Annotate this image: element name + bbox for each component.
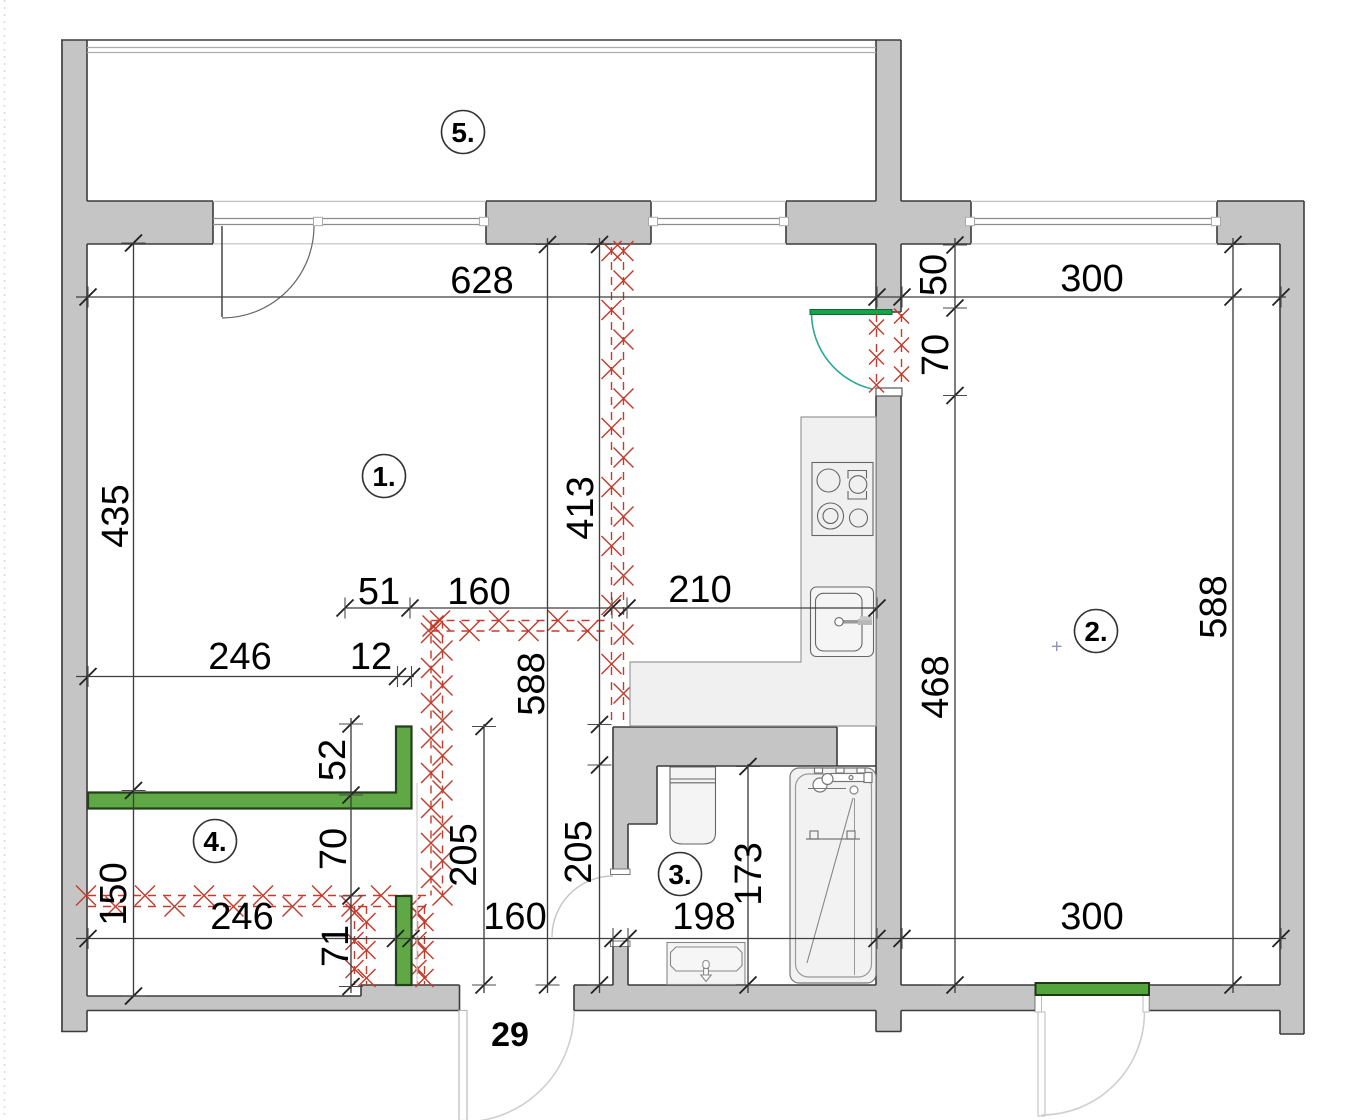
svg-text:198: 198 [672, 896, 735, 938]
svg-text:150: 150 [93, 862, 135, 925]
svg-text:205: 205 [558, 820, 600, 883]
svg-text:70: 70 [313, 828, 355, 870]
svg-text:70: 70 [915, 334, 957, 376]
svg-text:205: 205 [443, 823, 485, 886]
svg-text:300: 300 [1060, 896, 1123, 938]
svg-text:3.: 3. [668, 859, 691, 890]
svg-text:435: 435 [95, 484, 137, 547]
svg-text:2.: 2. [1084, 616, 1107, 647]
svg-text:160: 160 [483, 896, 546, 938]
svg-text:246: 246 [210, 896, 273, 938]
svg-text:588: 588 [1193, 575, 1235, 638]
svg-text:5.: 5. [451, 117, 474, 148]
svg-text:300: 300 [1060, 258, 1123, 300]
svg-text:1.: 1. [372, 461, 395, 492]
svg-text:588: 588 [511, 652, 553, 715]
svg-text:71: 71 [315, 925, 357, 967]
svg-text:628: 628 [450, 260, 513, 302]
svg-text:52: 52 [312, 739, 354, 781]
svg-text:51: 51 [358, 571, 400, 613]
svg-text:50: 50 [913, 254, 955, 296]
svg-text:4.: 4. [203, 826, 226, 857]
svg-text:413: 413 [560, 476, 602, 539]
svg-text:246: 246 [208, 636, 271, 678]
svg-text:210: 210 [668, 569, 731, 611]
svg-text:468: 468 [915, 655, 957, 718]
svg-text:160: 160 [447, 571, 510, 613]
svg-text:29: 29 [491, 1016, 529, 1054]
svg-text:12: 12 [350, 636, 392, 678]
svg-text:173: 173 [728, 842, 770, 905]
